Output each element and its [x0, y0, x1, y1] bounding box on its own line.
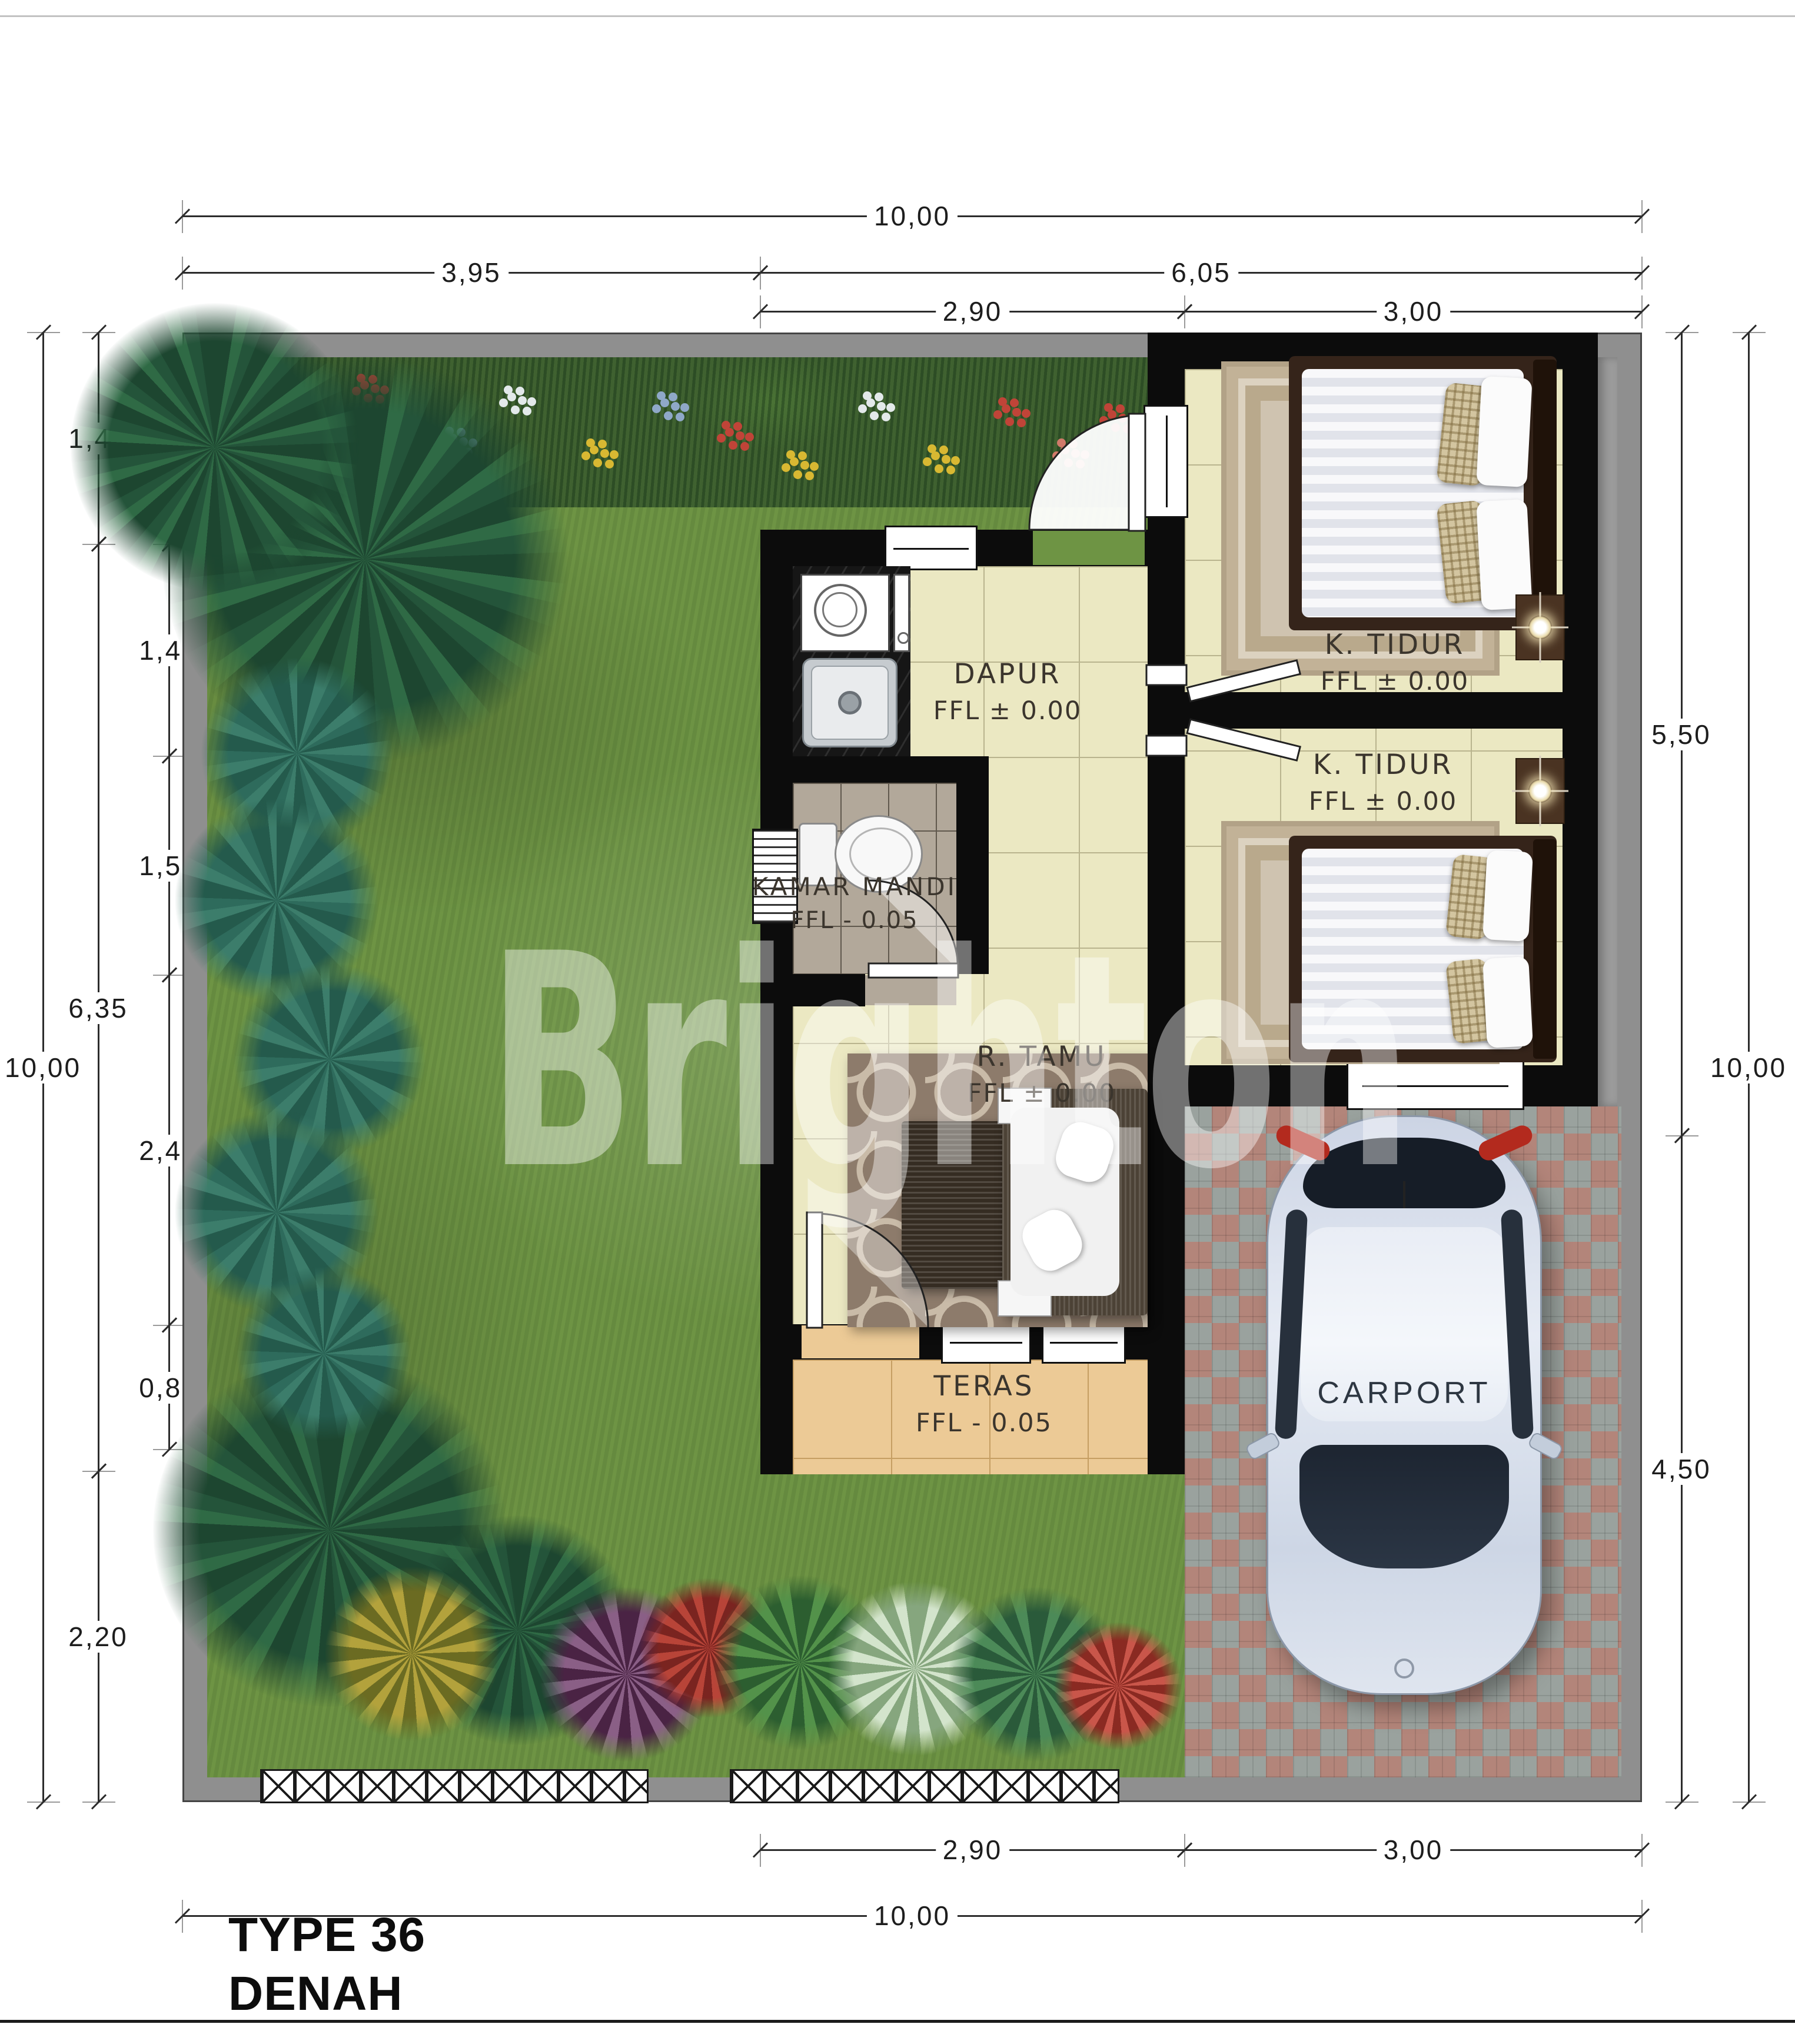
sheet-title: TYPE 36 DENAH — [228, 1906, 426, 2023]
dim-label: 2,90 — [936, 1834, 1010, 1866]
flower-cluster-icon — [507, 393, 516, 401]
dim-left-6_35: 6,35 — [89, 544, 107, 1471]
flower-cluster-icon — [1002, 404, 1010, 413]
kitchen-sink-icon — [802, 658, 897, 747]
dim-label: 2,90 — [936, 295, 1010, 327]
dim-label: 6,35 — [61, 992, 135, 1024]
dim-top-3_95: 3,95 — [182, 264, 760, 281]
bedroom2-nightstand — [1515, 758, 1565, 824]
brighton-watermark: Brighton — [487, 915, 1408, 1209]
pine-tree-icon — [71, 303, 359, 591]
dim-right-10_00: 10,00 — [1740, 333, 1757, 1802]
dim-label: 3,95 — [434, 257, 508, 288]
flower-cluster-icon — [866, 398, 875, 407]
stove-icon — [800, 574, 890, 652]
sheet-title-denah: DENAH — [228, 1965, 426, 2023]
flower-cluster-icon — [1108, 410, 1116, 419]
page-top-rule — [0, 15, 1795, 17]
flower-cluster-icon — [590, 446, 599, 454]
bedroom1-nightstand — [1515, 594, 1565, 660]
kitchen-window — [885, 526, 978, 570]
dim-label: 4,50 — [1644, 1453, 1718, 1485]
dim-right-5_50: 5,50 — [1673, 333, 1690, 1136]
wall-between-bedrooms — [1185, 692, 1563, 729]
shrub-icon — [1053, 1621, 1183, 1751]
bedroom1-bed — [1289, 356, 1557, 630]
dim-label: 2,20 — [61, 1621, 135, 1653]
grass-block-pavers-left — [260, 1769, 649, 1803]
dim-label: 3,00 — [1377, 1834, 1451, 1866]
grass-block-pavers-right — [730, 1769, 1119, 1803]
shrub-icon — [324, 1566, 500, 1742]
room-label-teras: TERASFFL - 0.05 — [916, 1370, 1052, 1438]
dim-top-6_05: 6,05 — [760, 264, 1642, 281]
room-label-dapur: DAPURFFL ± 0.00 — [933, 658, 1082, 726]
dim-left-2_20: 2,20 — [89, 1471, 107, 1802]
wall-bedrooms-right — [1563, 333, 1598, 1106]
flower-cluster-icon — [931, 451, 940, 460]
room-label-ktidur1: K. TIDURFFL ± 0.00 — [1321, 629, 1470, 696]
dim-right-4_50: 4,50 — [1673, 1136, 1690, 1802]
flower-cluster-icon — [1061, 446, 1069, 454]
flower-cluster-icon — [660, 398, 669, 407]
side-door-opening — [1033, 531, 1145, 565]
dim-label: 10,00 — [867, 200, 958, 232]
leaf-plant-icon — [235, 1265, 412, 1442]
flower-cluster-icon — [790, 457, 799, 466]
right-sidewalk-strip — [1598, 357, 1617, 1106]
dim-bottom-2_90: 2,90 — [760, 1841, 1185, 1859]
dim-left-2_40: 2,40 — [160, 975, 178, 1325]
bedroom1-side-window — [1144, 405, 1188, 518]
dim-top-2_90: 2,90 — [760, 303, 1185, 320]
dim-label: 10,00 — [0, 1052, 88, 1084]
dim-left-1_50: 1,50 — [160, 756, 178, 975]
dim-bottom-3_00: 3,00 — [1185, 1841, 1642, 1859]
front-door-opening — [802, 1325, 919, 1358]
dim-label: 5,50 — [1644, 719, 1718, 750]
dim-top-10_00: 10,00 — [182, 207, 1642, 225]
carport-label: CARPORT — [1317, 1375, 1491, 1411]
dim-label: 3,00 — [1377, 295, 1451, 327]
room-label-ktidur2: K. TIDURFFL ± 0.00 — [1309, 749, 1458, 816]
dim-left-10_00: 10,00 — [34, 333, 52, 1802]
dim-left-0_85: 0,85 — [160, 1325, 178, 1450]
flower-cluster-icon — [725, 428, 734, 437]
floor-plan-sheet: 10,003,956,052,903,0010,001,456,352,201,… — [0, 0, 1795, 2044]
dim-label: 6,05 — [1164, 257, 1238, 288]
dim-label: 10,00 — [867, 1900, 958, 1932]
sheet-title-type: TYPE 36 — [228, 1906, 426, 1965]
dim-top-3_00: 3,00 — [1185, 303, 1642, 320]
stove-control-strip — [893, 574, 910, 652]
dim-label: 10,00 — [1703, 1052, 1794, 1084]
